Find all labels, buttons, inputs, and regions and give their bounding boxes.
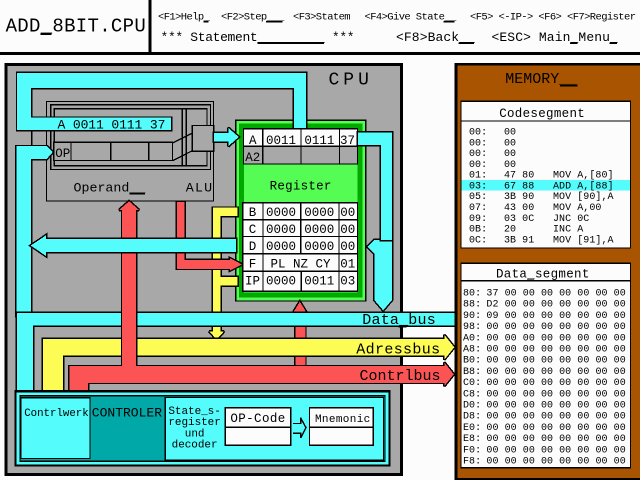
svg-text:09:: 09:: [469, 214, 487, 225]
svg-text:00 00 00 00 00 00 00 00: 00 00 00 00 00 00 00 00: [486, 434, 625, 445]
svg-text:register: register: [168, 417, 220, 429]
svg-text:00: 00: [340, 223, 355, 237]
svg-text:B: B: [249, 206, 257, 220]
svg-text:00: 00: [504, 149, 516, 160]
svg-text:B0:: B0:: [463, 356, 481, 367]
svg-text:0000: 0000: [304, 223, 334, 237]
svg-text:OP: OP: [55, 147, 70, 161]
svg-text:Contrlwerk: Contrlwerk: [24, 408, 89, 420]
svg-text:00:: 00:: [469, 149, 487, 160]
svg-text:D0:: D0:: [463, 401, 481, 412]
svg-text:00: 00: [504, 138, 516, 149]
svg-text:INC A: INC A: [553, 225, 583, 236]
svg-text:00:: 00:: [469, 128, 487, 139]
svg-text:01:: 01:: [469, 171, 487, 182]
svg-text:PL NZ CY: PL NZ CY: [270, 257, 331, 271]
svg-text:03: 03: [340, 275, 355, 289]
svg-text:00 00 00 00 00 00 00 00: 00 00 00 00 00 00 00 00: [486, 401, 625, 412]
svg-text:20: 20: [504, 225, 516, 236]
svg-text:0000: 0000: [266, 240, 296, 254]
svg-text:Register: Register: [270, 179, 332, 193]
svg-text:98:: 98:: [463, 322, 481, 333]
svg-text:C8:: C8:: [463, 389, 481, 400]
svg-text:D2 00 00 00 00 00 00 00: D2 00 00 00 00 00 00 00: [486, 300, 625, 311]
svg-text:00 00 00 00 00 00 00 00: 00 00 00 00 00 00 00 00: [486, 389, 625, 400]
svg-text:<F1>Help_: <F1>Help_: [158, 12, 211, 24]
svg-text:CONTROLER: CONTROLER: [92, 405, 162, 420]
svg-text:E8:: E8:: [463, 434, 481, 445]
svg-text:00 00 00 00 00 00 00 00: 00 00 00 00 00 00 00 00: [486, 423, 625, 434]
svg-text:Contrlbus: Contrlbus: [360, 368, 441, 385]
svg-text:MOV [90],A: MOV [90],A: [553, 191, 614, 203]
svg-text:00: 00: [504, 128, 516, 139]
svg-text:00 00 00 00 00 00 00 00: 00 00 00 00 00 00 00 00: [486, 367, 625, 378]
svg-text:Codesegment: Codesegment: [499, 107, 585, 121]
svg-text:A2: A2: [245, 151, 260, 165]
svg-text:00 00 00 00 00 00 00 00: 00 00 00 00 00 00 00 00: [486, 457, 625, 468]
svg-text:37 00 00 00 00 00 00 00: 37 00 00 00 00 00 00 00: [486, 289, 625, 300]
svg-text:00 00 00 00 00 00 00 00: 00 00 00 00 00 00 00 00: [486, 412, 625, 423]
svg-text:00: 00: [504, 160, 516, 171]
svg-text:F0:: F0:: [463, 445, 481, 456]
svg-text:<ESC> Main_Menu_: <ESC> Main_Menu_: [492, 30, 619, 45]
svg-text:ALU: ALU: [186, 181, 214, 196]
svg-text:A0:: A0:: [463, 333, 481, 344]
svg-text:0000: 0000: [266, 223, 296, 237]
svg-text:<F7>Register: <F7>Register: [567, 12, 636, 24]
svg-text:0000: 0000: [266, 206, 296, 220]
svg-text:State_s-: State_s-: [168, 406, 220, 418]
svg-text:0B:: 0B:: [469, 225, 487, 236]
svg-text:D8:: D8:: [463, 412, 481, 423]
svg-text:B8:: B8:: [463, 367, 481, 378]
svg-text:00 00 00 00 00 00 00 00: 00 00 00 00 00 00 00 00: [486, 378, 625, 389]
svg-text:00 00 00 00 00 00 00 00: 00 00 00 00 00 00 00 00: [486, 356, 625, 367]
svg-text:OP-Code: OP-Code: [230, 412, 285, 426]
svg-text:0011: 0011: [304, 275, 334, 289]
svg-text:A 0011 0111 37: A 0011 0111 37: [58, 118, 166, 133]
svg-text:37: 37: [340, 134, 355, 148]
svg-text:E0:: E0:: [463, 423, 481, 434]
svg-text:07:: 07:: [469, 203, 487, 214]
svg-text:09 00 00 00 00 00 00 00: 09 00 00 00 00 00 00 00: [486, 311, 625, 322]
svg-text:0000: 0000: [266, 275, 296, 289]
svg-text:IP: IP: [245, 275, 260, 289]
svg-text:F8:: F8:: [463, 457, 481, 468]
svg-text:00 00 00 00 00 00 00 00: 00 00 00 00 00 00 00 00: [486, 345, 625, 356]
svg-text:03 0C: 03 0C: [504, 214, 534, 225]
svg-text:88:: 88:: [463, 300, 481, 311]
svg-text:0000: 0000: [304, 240, 334, 254]
svg-text:00: 00: [340, 206, 355, 220]
svg-text:67 88: 67 88: [504, 181, 534, 192]
svg-text:00 00 00 00 00 00 00 00: 00 00 00 00 00 00 00 00: [486, 333, 625, 344]
svg-text:MOV [91],A: MOV [91],A: [553, 234, 614, 246]
svg-text:<F5> <-IP-> <F6>: <F5> <-IP-> <F6>: [470, 12, 562, 24]
svg-text:ADD_8BIT.CPU: ADD_8BIT.CPU: [6, 15, 146, 37]
svg-text:80:: 80:: [463, 289, 481, 300]
svg-text:JNC 0C: JNC 0C: [553, 214, 589, 225]
svg-text:MOV A,[80]: MOV A,[80]: [553, 170, 614, 182]
svg-text:00 00 00 00 00 00 00 00: 00 00 00 00 00 00 00 00: [486, 322, 625, 333]
svg-text:ADD A,[88]: ADD A,[88]: [553, 180, 614, 192]
svg-text:01: 01: [340, 257, 355, 271]
svg-text:03:: 03:: [469, 181, 487, 192]
svg-text:D: D: [249, 240, 257, 254]
svg-text:0111: 0111: [304, 134, 334, 148]
svg-text:47 80: 47 80: [504, 171, 534, 182]
svg-text:F: F: [249, 257, 257, 271]
svg-text:0C:: 0C:: [469, 235, 487, 246]
svg-text:Adressbus: Adressbus: [356, 342, 440, 359]
svg-text:00:: 00:: [469, 138, 487, 149]
svg-text:Data_segment: Data_segment: [496, 268, 590, 282]
svg-text:0011: 0011: [266, 134, 296, 148]
svg-text:<F4>Give State__: <F4>Give State__: [365, 12, 458, 24]
svg-text:A: A: [249, 134, 257, 148]
svg-text:00: 00: [340, 240, 355, 254]
svg-text:decoder: decoder: [172, 440, 218, 452]
svg-text:43 00: 43 00: [504, 203, 534, 214]
svg-text:90:: 90:: [463, 311, 481, 322]
svg-text:0000: 0000: [304, 206, 334, 220]
svg-text:C0:: C0:: [463, 378, 481, 389]
svg-text:Mnemonic: Mnemonic: [315, 414, 371, 426]
svg-text:3B 91: 3B 91: [504, 235, 534, 246]
svg-text:3B 90: 3B 90: [504, 192, 534, 203]
svg-text:00:: 00:: [469, 160, 487, 171]
svg-text:00 00 00 00 00 00 00 00: 00 00 00 00 00 00 00 00: [486, 445, 625, 456]
svg-text:<F3>Statem: <F3>Statem: [293, 12, 350, 24]
svg-text:CPU: CPU: [329, 71, 373, 91]
svg-text:MOV A,00: MOV A,00: [553, 203, 602, 214]
svg-text:05:: 05:: [469, 192, 487, 203]
svg-text:A8:: A8:: [463, 345, 481, 356]
svg-text:C: C: [249, 223, 257, 237]
svg-text:und: und: [185, 428, 205, 440]
